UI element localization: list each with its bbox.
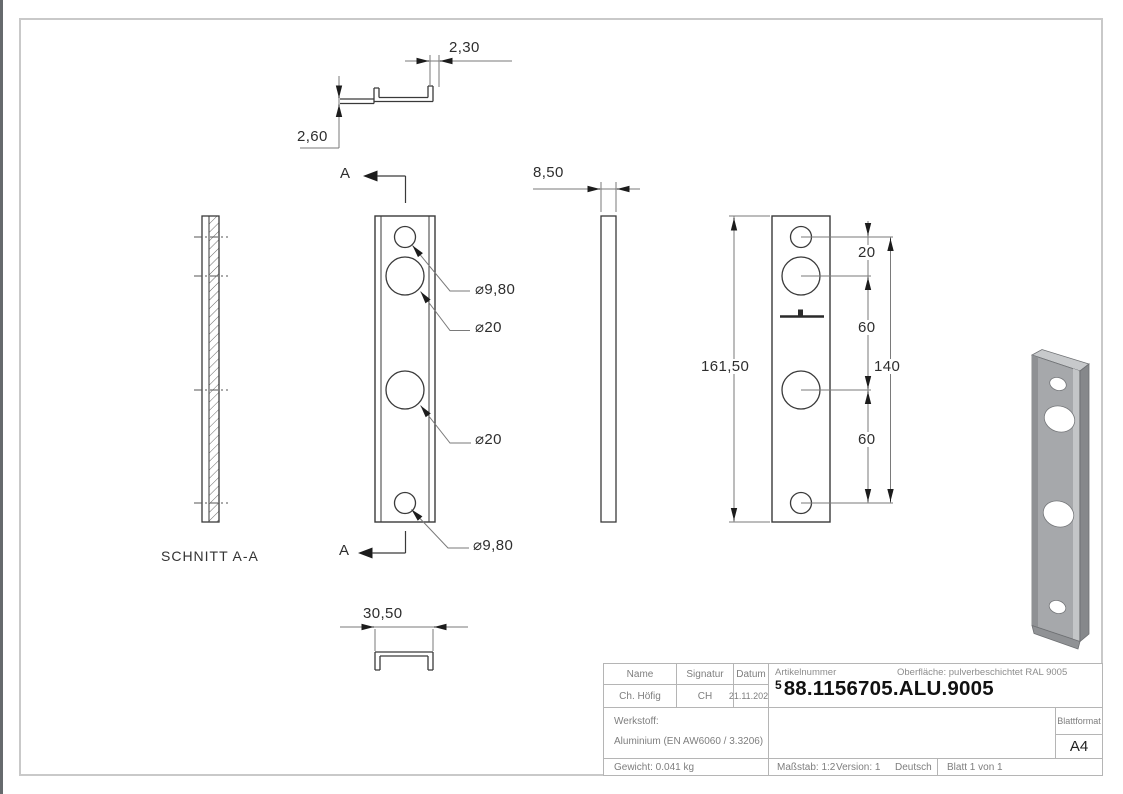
top-profile-view [300, 55, 512, 148]
side-view [533, 182, 640, 522]
signature-header-cell: Signatur [676, 663, 734, 685]
signature-value-cell: CH [676, 684, 734, 708]
dim-dia-small-top: ⌀9,80 [475, 282, 515, 297]
dim-outer-hole-span: 140 [871, 359, 903, 374]
dim-web-thickness: 2,60 [297, 129, 328, 144]
language-value: Deutsch [895, 762, 932, 773]
part-3d-view [1032, 350, 1089, 650]
dim-hole-spacing-lower: 60 [855, 432, 879, 447]
material-cell: Werkstoff: Aluminium (EN AW6060 / 3.3206… [603, 707, 769, 759]
bottom-profile-view [340, 627, 468, 670]
weight-cell: Gewicht: 0.041 kg [603, 758, 769, 776]
title-block: Name Signatur Datum Ch. Höfig CH 21.11.2… [603, 663, 1103, 776]
back-view [729, 216, 893, 522]
article-number-value: 88.1156705.ALU.9005 [784, 677, 994, 700]
sheet-count-cell: Blatt 1 von 1 [937, 758, 1103, 776]
article-number: 588.1156705.ALU.9005 [775, 677, 994, 701]
version-value: Version: 1 [836, 762, 880, 773]
article-number-prefix: 5 [775, 678, 782, 692]
front-view [375, 216, 471, 548]
dim-dia-large-top: ⌀20 [475, 320, 502, 335]
scale-value: Maßstab: 1:2 [777, 762, 835, 773]
date-value-cell: 21.11.2025 [733, 684, 769, 708]
section-view-label: SCHNITT A-A [161, 549, 259, 563]
article-number-cell: Artikelnummer Oberfläche: pulverbeschich… [768, 663, 1103, 708]
dim-dia-large-bottom: ⌀20 [475, 432, 502, 447]
name-header-cell: Name [603, 663, 677, 685]
section-marker-bottom: A [339, 543, 349, 558]
date-header-cell: Datum [733, 663, 769, 685]
section-marker-top: A [340, 166, 350, 181]
drawing-sheet: 2,30 2,60 A A 8,50 ⌀9,80 ⌀20 ⌀20 ⌀9,80 3… [0, 0, 1123, 794]
weight-value: Gewicht: 0.041 kg [614, 762, 694, 773]
dim-total-height: 161,50 [698, 359, 752, 374]
dim-dia-small-bottom: ⌀9,80 [473, 538, 513, 553]
section-view [194, 216, 228, 522]
name-value-cell: Ch. Höfig [603, 684, 677, 708]
sheet-format-value-cell: A4 [1055, 734, 1103, 759]
sheet-format-label-cell: Blattformat [1055, 707, 1103, 735]
dim-profile-depth: 8,50 [533, 165, 564, 180]
material-value: Aluminium (EN AW6060 / 3.3206) [614, 736, 763, 747]
dim-lip-thickness: 2,30 [449, 40, 480, 55]
dim-top-hole-offset: 20 [855, 245, 879, 260]
sheet-count-value: Blatt 1 von 1 [947, 762, 1003, 773]
dim-hole-spacing-upper: 60 [855, 320, 879, 335]
dim-profile-width: 30,50 [363, 606, 403, 621]
scale-cell: Maßstab: 1:2 Version: 1 Deutsch [768, 758, 938, 776]
material-label: Werkstoff: [614, 716, 659, 727]
empty-cell [768, 707, 1056, 759]
